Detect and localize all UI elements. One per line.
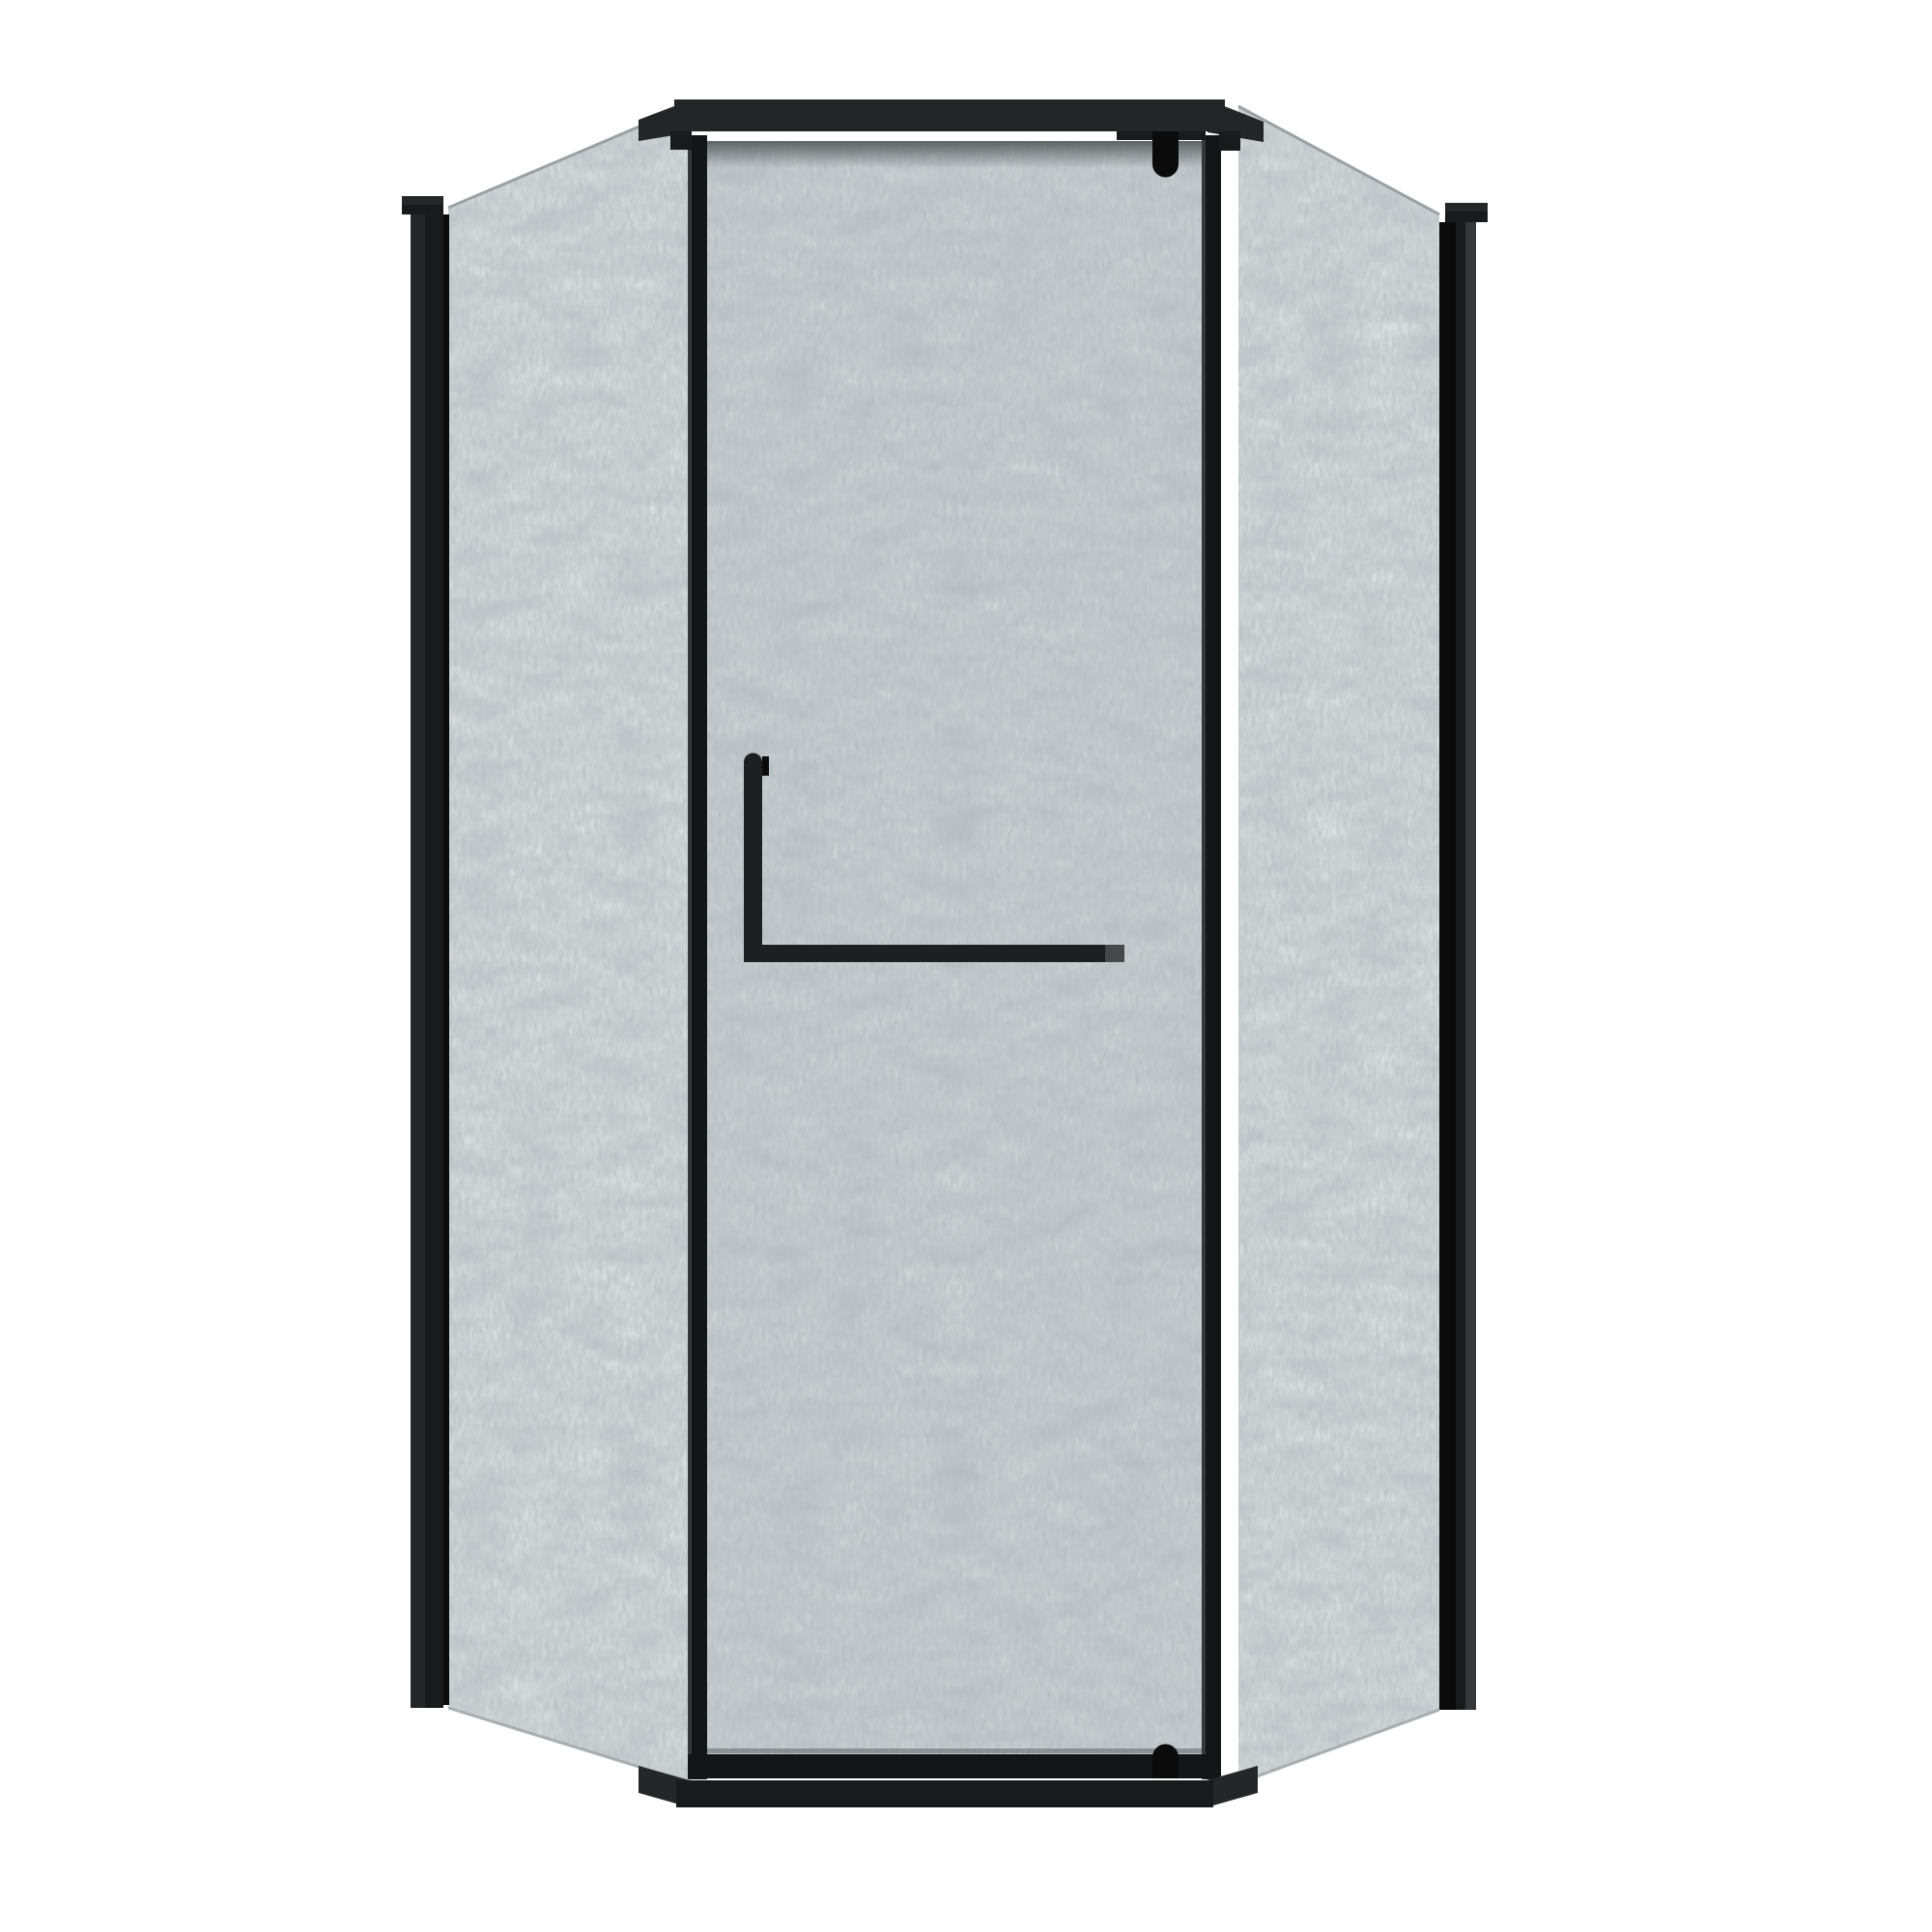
left-corner-post-highlight bbox=[688, 135, 692, 1779]
shower-enclosure-render bbox=[0, 0, 1932, 1932]
right-hinge-post bbox=[1202, 135, 1221, 1779]
right-wall-profile-glass-clamp bbox=[1439, 222, 1456, 1710]
left-wall-profile-cap bbox=[402, 205, 443, 214]
header-right-corner-bracket bbox=[1219, 131, 1240, 151]
right-wall-profile-cap bbox=[1445, 212, 1488, 222]
left-wall-profile-cap-top bbox=[402, 196, 443, 206]
threshold-body bbox=[676, 1780, 1213, 1807]
left-wall-profile-glass-clamp bbox=[443, 214, 449, 1705]
right-wall-profile-side bbox=[1456, 222, 1465, 1710]
door-bottom-rail bbox=[688, 1754, 1221, 1778]
left-glass-frost-texture bbox=[448, 104, 692, 1783]
right-wall-profile-cap-top bbox=[1445, 203, 1488, 213]
left-glass-panel bbox=[448, 104, 692, 1783]
right-wall-profile-face bbox=[1465, 222, 1476, 1710]
handle-towel-bar bbox=[744, 945, 1105, 962]
left-wall-profile-side bbox=[425, 214, 443, 1708]
header-body bbox=[674, 99, 1225, 131]
right-glass-panel bbox=[1238, 106, 1439, 1783]
bottom-pivot-hinge bbox=[1152, 1745, 1179, 1779]
right-hinge-post-highlight bbox=[1202, 135, 1206, 1779]
handle-vertical-bar bbox=[744, 753, 762, 962]
left-corner-post-body bbox=[692, 135, 707, 1779]
right-glass-frost-texture bbox=[1238, 106, 1439, 1783]
door-glass-bottom-edge bbox=[690, 1748, 1219, 1753]
left-corner-post bbox=[688, 135, 707, 1779]
handle-mount-nub bbox=[762, 756, 769, 776]
left-wall-profile-face bbox=[411, 214, 425, 1708]
door-glass-top-shadow bbox=[690, 141, 1219, 168]
handle-end-cap bbox=[1105, 945, 1124, 962]
right-hinge-post-body bbox=[1206, 135, 1221, 1779]
product-image bbox=[0, 0, 1932, 1932]
header-left-corner-bracket bbox=[670, 131, 692, 150]
top-pivot-hinge bbox=[1152, 131, 1179, 178]
